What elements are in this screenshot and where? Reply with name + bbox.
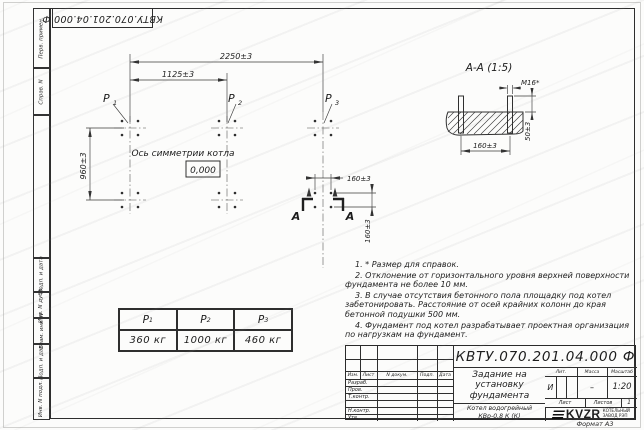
- top-doc-number-box: КВТУ.070.201.04.000 Ф: [52, 8, 153, 28]
- top-doc-number: КВТУ.070.201.04.000 Ф: [42, 13, 163, 24]
- strip-label: Инв. N подл.: [39, 381, 45, 417]
- product-line: Котел водогрейный: [467, 405, 532, 413]
- role-nkontr: Н.контр.: [346, 407, 377, 414]
- load-value-p2: 1000 кг: [177, 330, 235, 351]
- tb-line: [556, 376, 557, 398]
- sheets-label: Листов: [585, 398, 621, 407]
- strip-cell-vzam-inv: Взам. инв. N: [33, 318, 50, 344]
- left-attribute-strip: Перв. примен. Справ. N Подп. и дата Инв.…: [33, 8, 50, 420]
- kvzr-logo-icon: [552, 409, 565, 419]
- scale-label: Масштаб: [607, 368, 637, 376]
- load-value-p1: 360 кг: [119, 330, 177, 351]
- note-1: 1. * Размер для справок.: [345, 260, 636, 270]
- mass-value: –: [577, 376, 607, 398]
- role-prov: Пров.: [346, 386, 377, 393]
- note-2: 2. Отклонение от горизонтального уровня …: [345, 271, 636, 290]
- scale-value: 1:20: [607, 376, 637, 398]
- tb-line: [377, 346, 378, 421]
- product-name: Котел водогрейный КВр-0,8 К (К): [453, 403, 545, 421]
- load-table-header-p2: Р2: [177, 309, 235, 330]
- strip-cell-empty: [33, 115, 50, 258]
- lit-label: Лит.: [545, 368, 577, 376]
- rev-col-ndocum: N докум.: [377, 371, 417, 379]
- kvzr-caption-line: ЗАВОД РЭП: [603, 414, 630, 419]
- role-razrab: Разраб.: [346, 379, 377, 386]
- rev-col-izm: Изм.: [346, 371, 360, 379]
- role-utv: Утв.: [346, 414, 377, 421]
- sheet-label: Лист: [545, 398, 585, 407]
- strip-cell-sprav-n: Справ. N: [33, 68, 50, 115]
- load-header-sub: 1: [149, 316, 153, 324]
- load-table-header-p3: Р3: [234, 309, 292, 330]
- rev-col-podp: Подп.: [417, 371, 437, 379]
- doc-title-line: фундамента: [470, 391, 530, 402]
- role-tkontr: Т.контр.: [346, 393, 377, 400]
- manufacturer-logo: KVZR КОТЕЛЬНЫЙ ЗАВОД РЭП: [545, 407, 637, 421]
- load-header-sub: 2: [207, 316, 211, 324]
- strip-label: Подп. и дата: [39, 342, 45, 379]
- doc-title-line: установку: [475, 380, 524, 391]
- tb-line: [566, 376, 567, 398]
- role-blank: [346, 400, 377, 407]
- doc-number: КВТУ.070.201.04.000 Ф: [453, 346, 637, 368]
- lit-value: И: [545, 376, 556, 398]
- kvzr-caption: КОТЕЛЬНЫЙ ЗАВОД РЭП: [603, 409, 630, 418]
- product-line: КВр-0,8 К (К): [478, 413, 520, 421]
- load-value-p3: 460 кг: [234, 330, 292, 351]
- doc-title-line: Задание на: [472, 370, 527, 381]
- note-3: 3. В случае отсутствия бетонного пола пл…: [345, 291, 636, 320]
- mass-label: Масса: [577, 368, 607, 376]
- rev-col-list: Лист: [360, 371, 377, 379]
- drawing-sheet: Перв. примен. Справ. N Подп. и дата Инв.…: [0, 0, 644, 430]
- doc-title: Задание на установку фундамента: [453, 368, 545, 403]
- strip-label: Справ. N: [39, 79, 45, 104]
- tb-line: [417, 346, 418, 421]
- title-block: Изм. Лист N докум. Подп. Дата Разраб. Пр…: [345, 345, 636, 420]
- note-4: 4. Фундамент под котел разрабатывает про…: [345, 321, 636, 340]
- format-label: Формат А3: [545, 420, 644, 428]
- notes-block: 1. * Размер для справок. 2. Отклонение о…: [345, 260, 636, 341]
- strip-cell-podp-data-2: Подп. и дата: [33, 344, 50, 378]
- rev-col-data: Дата: [437, 371, 453, 379]
- strip-cell-inv-podl: Инв. N подл.: [33, 378, 50, 420]
- load-table: Р1 Р2 Р3 360 кг 1000 кг 460 кг: [118, 308, 293, 352]
- kvzr-brand: KVZR: [566, 407, 601, 421]
- sheets-value: 1: [621, 398, 637, 407]
- load-table-header-p1: Р1: [119, 309, 177, 330]
- tb-line: [437, 346, 438, 421]
- load-header-sub: 3: [264, 316, 268, 324]
